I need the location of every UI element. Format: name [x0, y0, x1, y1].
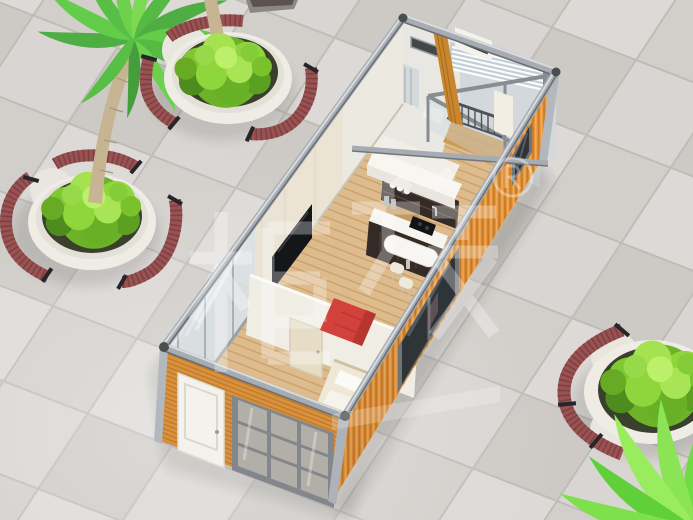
balcony-pillar	[494, 90, 513, 138]
door-handle	[215, 430, 219, 434]
scene-svg	[0, 0, 693, 520]
render-canvas: 柜族 ®	[0, 0, 693, 520]
